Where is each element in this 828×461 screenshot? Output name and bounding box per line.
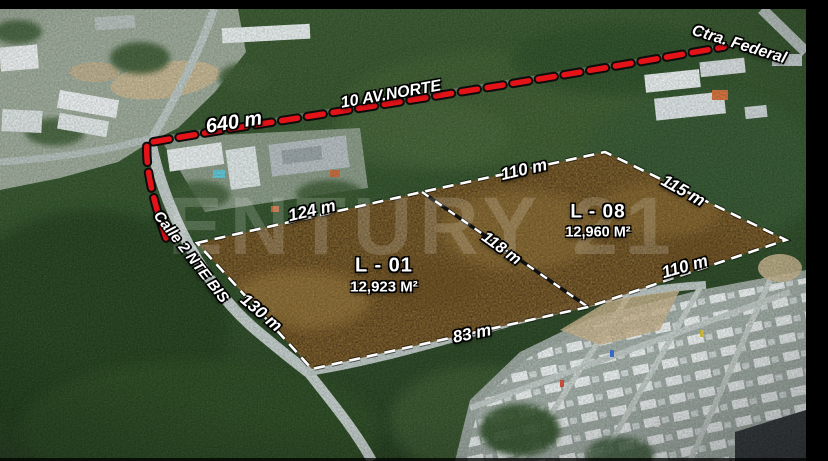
annotated-aerial-listing: ENTURY 21 640 m 10 AV.NORTE Ctra. Federa… bbox=[0, 0, 828, 461]
lot-label-l08: L - 08 12,960 M² bbox=[565, 202, 630, 241]
lot-id-l01: L - 01 bbox=[350, 255, 418, 278]
right-bar bbox=[806, 0, 828, 461]
lot-area-l08: 12,960 M² bbox=[565, 225, 630, 241]
top-bar bbox=[0, 0, 828, 9]
lot-label-l01: L - 01 12,923 M² bbox=[350, 255, 418, 296]
lot-area-l01: 12,923 M² bbox=[350, 279, 418, 296]
lot-id-l08: L - 08 bbox=[565, 202, 630, 224]
